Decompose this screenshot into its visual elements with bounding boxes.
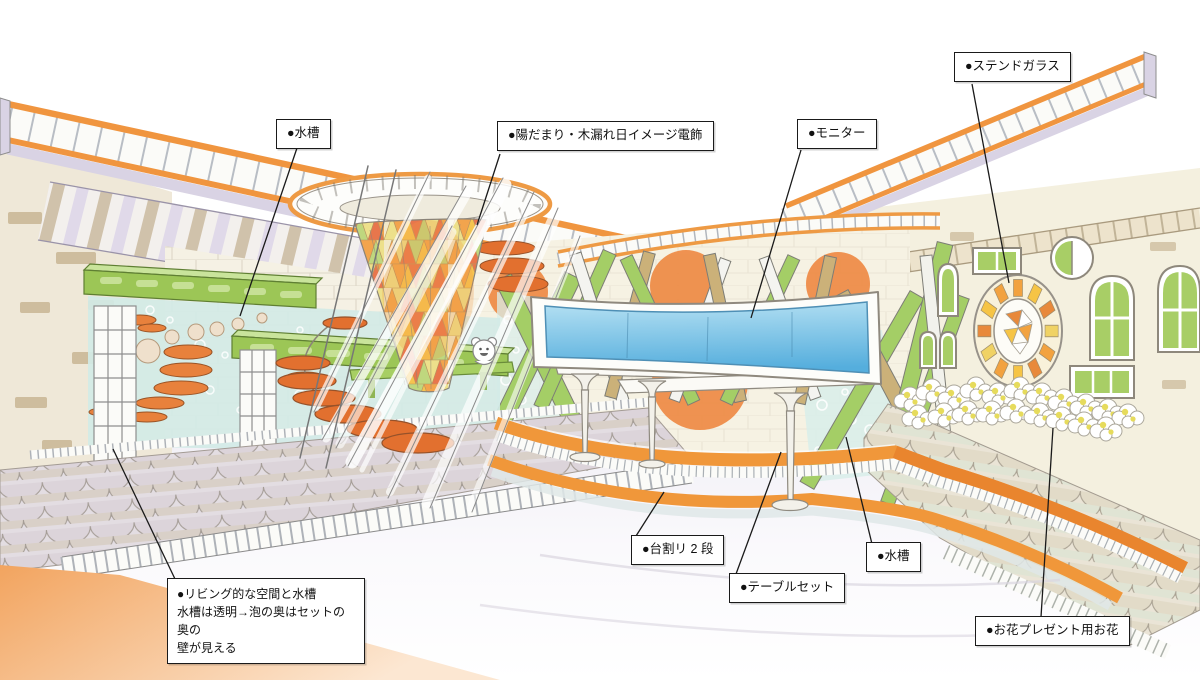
window-far-right	[1158, 266, 1200, 352]
window-arch-narrow	[938, 264, 958, 316]
label-gift-flowers-text: ●お花プレゼント用お花	[986, 623, 1119, 637]
label-stage-two-tiers-text: ●台割リ 2 段	[642, 542, 713, 556]
window-round	[1051, 237, 1093, 279]
label-aquarium-top-text: ●水槽	[287, 126, 320, 140]
window-rect	[973, 248, 1021, 274]
label-gift-flowers: ●お花プレゼント用お花	[975, 616, 1130, 646]
label-aquarium-top: ●水槽	[276, 119, 331, 149]
label-living-space: ●リビング的な空間と水槽 水槽は透明→泡の奥はセットの奥の 壁が見える	[167, 578, 365, 664]
label-table-set-text: ●テーブルセット	[740, 580, 834, 594]
label-stained-glass-text: ●ステンドガラス	[965, 59, 1060, 73]
label-table-set: ●テーブルセット	[729, 573, 845, 603]
window-wide	[1070, 366, 1134, 398]
stained-glass-window	[974, 275, 1062, 387]
label-stage-two-tiers: ●台割リ 2 段	[631, 535, 724, 565]
label-sunlight-lighting-text: ●陽だまり・木漏れ日イメージ電飾	[508, 128, 703, 142]
window-arch-large	[1090, 276, 1134, 360]
set-design-sketch: ●水槽 ●陽だまり・木漏れ日イメージ電飾 ●モニター ●ステンドガラス ●リビン…	[0, 0, 1200, 680]
label-monitor: ●モニター	[797, 119, 877, 149]
label-living-space-line1: ●リビング的な空間と水槽	[177, 585, 355, 603]
label-aquarium-right-text: ●水槽	[877, 549, 910, 563]
label-stained-glass: ●ステンドガラス	[954, 52, 1071, 82]
label-living-space-line2: 水槽は透明→泡の奥はセットの奥の	[177, 603, 355, 639]
label-living-space-line3: 壁が見える	[177, 639, 355, 657]
label-monitor-text: ●モニター	[808, 126, 866, 140]
label-sunlight-lighting: ●陽だまり・木漏れ日イメージ電飾	[497, 121, 714, 151]
label-aquarium-right: ●水槽	[866, 542, 921, 572]
